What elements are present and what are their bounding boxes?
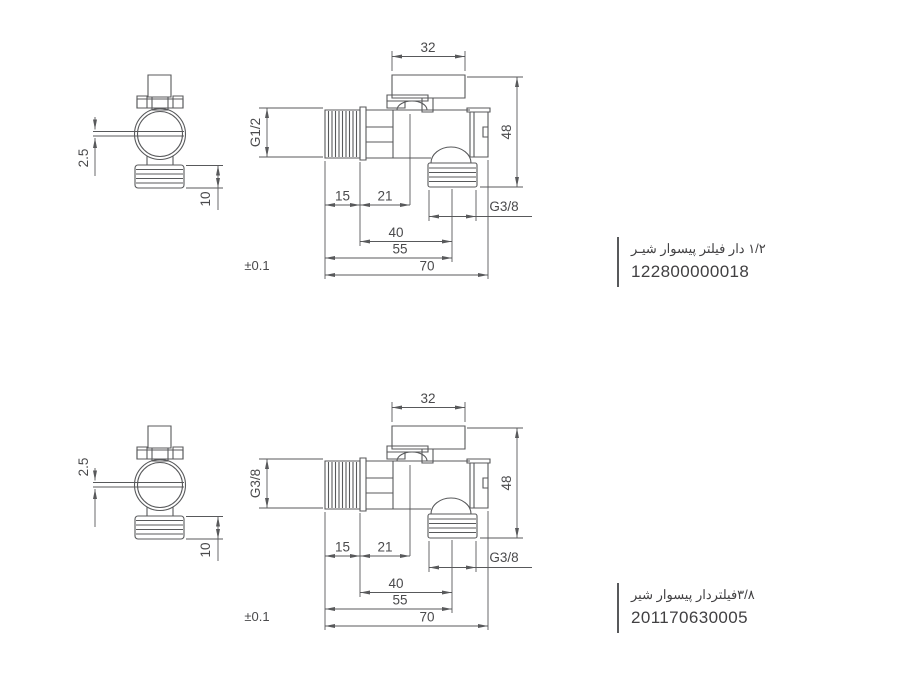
dim-label-body-height: 48: [499, 475, 514, 490]
dim-label-body-height: 48: [499, 124, 514, 139]
dim-label-slot-width: 2.5: [76, 458, 91, 477]
dim-label-inlet-thread: G1/2: [248, 118, 263, 147]
dim-label-outlet-offset: 40: [388, 576, 403, 591]
dim-label-outlet-thread: G3/8: [489, 199, 518, 214]
dim-label-handle-width: 32: [420, 40, 435, 55]
tolerance-label: ±0.1: [244, 609, 269, 624]
product-label-2: ۳/۸فیلتردار پیسوار شیر 201170630005: [617, 583, 816, 633]
dim-label-len-mid: 55: [392, 593, 407, 608]
dim-label-thread-len: 10: [198, 542, 213, 557]
section-2-drawing: 32 48 G3/8 15 21 G3/8 40 55 70 ±0.1 2.5 …: [76, 391, 532, 630]
dim-label-body-len: 21: [377, 189, 392, 204]
product-title: ۱/۲ دار فیلتر پیسوار شیـر: [631, 240, 816, 259]
section-divider-2: [67, 637, 840, 644]
section-divider-1: [67, 293, 840, 300]
product-label-1: ۱/۲ دار فیلتر پیسوار شیـر 122800000018: [617, 237, 816, 287]
dim-label-thread-len: 10: [198, 191, 213, 206]
valve-drawing: [93, 402, 532, 630]
dim-label-inlet-thread: G3/8: [248, 469, 263, 498]
dim-label-inlet-len: 15: [335, 540, 350, 555]
technical-drawing-canvas: 32 48 G1/2 15 21 G3/8 40 55 70 ±0.1 2.5 …: [0, 0, 900, 679]
dim-label-body-len: 21: [377, 540, 392, 555]
dim-label-len-mid: 55: [392, 242, 407, 257]
dim-label-slot-width: 2.5: [76, 149, 91, 168]
catalog-page: 32 48 G1/2 15 21 G3/8 40 55 70 ±0.1 2.5 …: [0, 0, 900, 679]
dim-label-handle-width: 32: [420, 391, 435, 406]
product-title: ۳/۸فیلتردار پیسوار شیر: [631, 586, 816, 605]
dim-label-inlet-len: 15: [335, 189, 350, 204]
section-1-drawing: 32 48 G1/2 15 21 G3/8 40 55 70 ±0.1 2.5 …: [76, 40, 532, 279]
product-code: 122800000018: [631, 262, 816, 282]
valve-drawing: [93, 51, 532, 279]
dim-label-outlet-thread: G3/8: [489, 550, 518, 565]
dim-label-total-len: 70: [419, 610, 434, 625]
tolerance-label: ±0.1: [244, 258, 269, 273]
product-code: 201170630005: [631, 608, 816, 628]
dim-label-outlet-offset: 40: [388, 225, 403, 240]
dim-label-total-len: 70: [419, 259, 434, 274]
